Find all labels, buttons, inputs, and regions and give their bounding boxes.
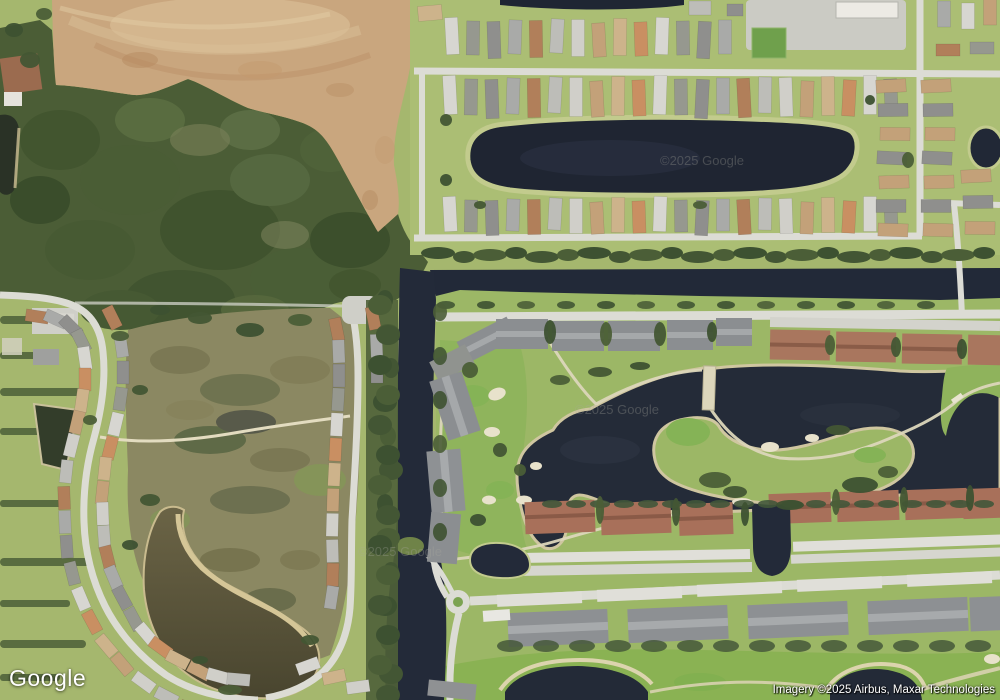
lake-finger (752, 504, 791, 576)
lake-bridge (702, 366, 716, 410)
pond-small (470, 543, 530, 578)
clubhouse-building (836, 2, 898, 18)
pond-east-edge (969, 127, 1000, 169)
google-logo[interactable]: Google (9, 665, 86, 692)
satellite-imagery: ©2025 Google ©2025 Google ©2025 Google (0, 0, 1000, 700)
watermark-text: ©2025 Google (660, 153, 744, 168)
imagery-attribution: Imagery ©2025 Airbus, Maxar Technologies (773, 684, 995, 696)
small-building (483, 609, 511, 622)
watermark-text: ©2025 Google (575, 402, 659, 417)
satellite-map[interactable]: ©2025 Google ©2025 Google ©2025 Google G… (0, 0, 1000, 700)
watermark-text: ©2025 Google (358, 544, 442, 559)
sport-court (752, 28, 786, 58)
